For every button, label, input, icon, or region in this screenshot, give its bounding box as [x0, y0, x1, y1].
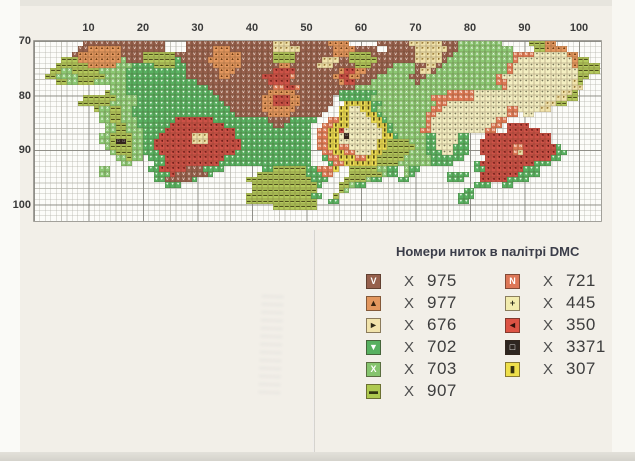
stitch-cell	[594, 215, 599, 220]
row-label: 100	[5, 199, 31, 211]
legend-dmc-code: 703	[427, 359, 457, 379]
scanned-cross-stitch-page: { "page": { "background": "#f2efe8" }, "…	[0, 0, 635, 461]
legend-entry: NX721	[505, 270, 606, 292]
legend-symbol-chip: ◄	[505, 318, 520, 333]
page-bleedthrough-smudge	[258, 295, 283, 396]
legend-symbol-chip: ▬	[366, 384, 381, 399]
legend-multiplier-x: X	[404, 295, 414, 312]
legend-title: Номери ниток в палітрі DMC	[396, 244, 616, 259]
col-label: 90	[518, 22, 530, 34]
legend-entry: XX703	[366, 358, 505, 380]
legend-multiplier-x: X	[404, 383, 414, 400]
col-label: 100	[570, 22, 588, 34]
stitch-chart-grid: VVVVVVVVVVVVVVVVVVVVVVVVVVVVVVV►►►VVVVVV…	[34, 41, 601, 221]
scan-edge-bottom	[0, 452, 635, 461]
legend-dmc-code: 350	[566, 315, 596, 335]
legend-dmc-code: 3371	[566, 337, 606, 357]
legend-entry: ▼X702	[366, 336, 505, 358]
col-label: 70	[409, 22, 421, 34]
legend-symbol-chip: □	[505, 340, 520, 355]
legend-multiplier-x: X	[404, 361, 414, 378]
legend-dmc-code: 445	[566, 293, 596, 313]
col-label: 50	[300, 22, 312, 34]
legend-dmc-code: 977	[427, 293, 457, 313]
legend-symbol-chip: +	[505, 296, 520, 311]
legend-symbol-chip: ▼	[366, 340, 381, 355]
legend-column-left: VX975▲X977►X676▼X702XX703▬X907	[366, 270, 505, 402]
legend-column-right: NX721+X445◄X350□X3371▮X307	[505, 270, 606, 402]
col-label: 20	[137, 22, 149, 34]
legend-symbol-chip: V	[366, 274, 381, 289]
legend-multiplier-x: X	[543, 317, 553, 334]
row-label: 80	[5, 90, 31, 102]
legend-symbol-chip: X	[366, 362, 381, 377]
legend-multiplier-x: X	[404, 339, 414, 356]
legend-dmc-code: 721	[566, 271, 596, 291]
col-label: 40	[246, 22, 258, 34]
legend-dmc-code: 702	[427, 337, 457, 357]
legend-entry: ▮X307	[505, 358, 606, 380]
legend-symbol-chip: ▮	[505, 362, 520, 377]
col-label: 30	[191, 22, 203, 34]
legend-multiplier-x: X	[543, 273, 553, 290]
page-fold-line	[313, 230, 315, 461]
legend-entry: ◄X350	[505, 314, 606, 336]
legend-symbol-chip: N	[505, 274, 520, 289]
dmc-legend: Номери ниток в палітрі DMC VX975▲X977►X6…	[366, 244, 616, 402]
legend-entry: □X3371	[505, 336, 606, 358]
legend-dmc-code: 307	[566, 359, 596, 379]
legend-dmc-code: 676	[427, 315, 457, 335]
col-label: 80	[464, 22, 476, 34]
legend-dmc-code: 907	[427, 381, 457, 401]
legend-multiplier-x: X	[543, 339, 553, 356]
legend-multiplier-x: X	[543, 295, 553, 312]
row-label: 90	[5, 144, 31, 156]
row-label: 70	[5, 35, 31, 47]
col-label: 10	[82, 22, 94, 34]
legend-multiplier-x: X	[543, 361, 553, 378]
legend-entry: +X445	[505, 292, 606, 314]
legend-symbol-chip: ►	[366, 318, 381, 333]
legend-multiplier-x: X	[404, 317, 414, 334]
col-label: 60	[355, 22, 367, 34]
legend-entry: ▬X907	[366, 380, 505, 402]
legend-symbol-chip: ▲	[366, 296, 381, 311]
legend-entry: VX975	[366, 270, 505, 292]
stitch-chart: 102030405060708090100 708090100 VVVVVVVV…	[0, 0, 635, 230]
legend-entry: ▲X977	[366, 292, 505, 314]
legend-dmc-code: 975	[427, 271, 457, 291]
legend-entry: ►X676	[366, 314, 505, 336]
legend-columns: VX975▲X977►X676▼X702XX703▬X907 NX721+X44…	[366, 270, 616, 402]
legend-multiplier-x: X	[404, 273, 414, 290]
